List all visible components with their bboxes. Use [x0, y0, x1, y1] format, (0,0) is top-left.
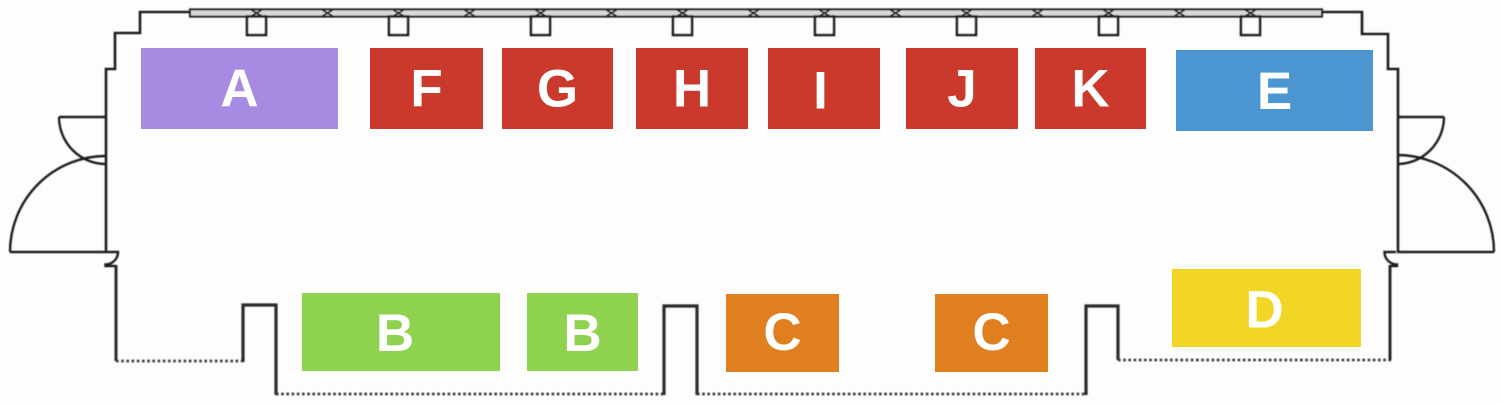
svg-text:E: E	[1257, 62, 1292, 121]
svg-text:C: C	[763, 303, 801, 362]
svg-text:J: J	[947, 60, 976, 119]
svg-text:H: H	[673, 60, 711, 119]
svg-text:G: G	[537, 60, 578, 119]
svg-text:B: B	[563, 304, 601, 363]
svg-text:D: D	[1245, 281, 1283, 340]
svg-text:F: F	[410, 60, 442, 119]
svg-text:I: I	[813, 62, 828, 121]
svg-text:K: K	[1071, 60, 1109, 119]
svg-text:C: C	[972, 303, 1010, 362]
svg-text:A: A	[220, 60, 258, 119]
svg-text:B: B	[376, 304, 414, 363]
